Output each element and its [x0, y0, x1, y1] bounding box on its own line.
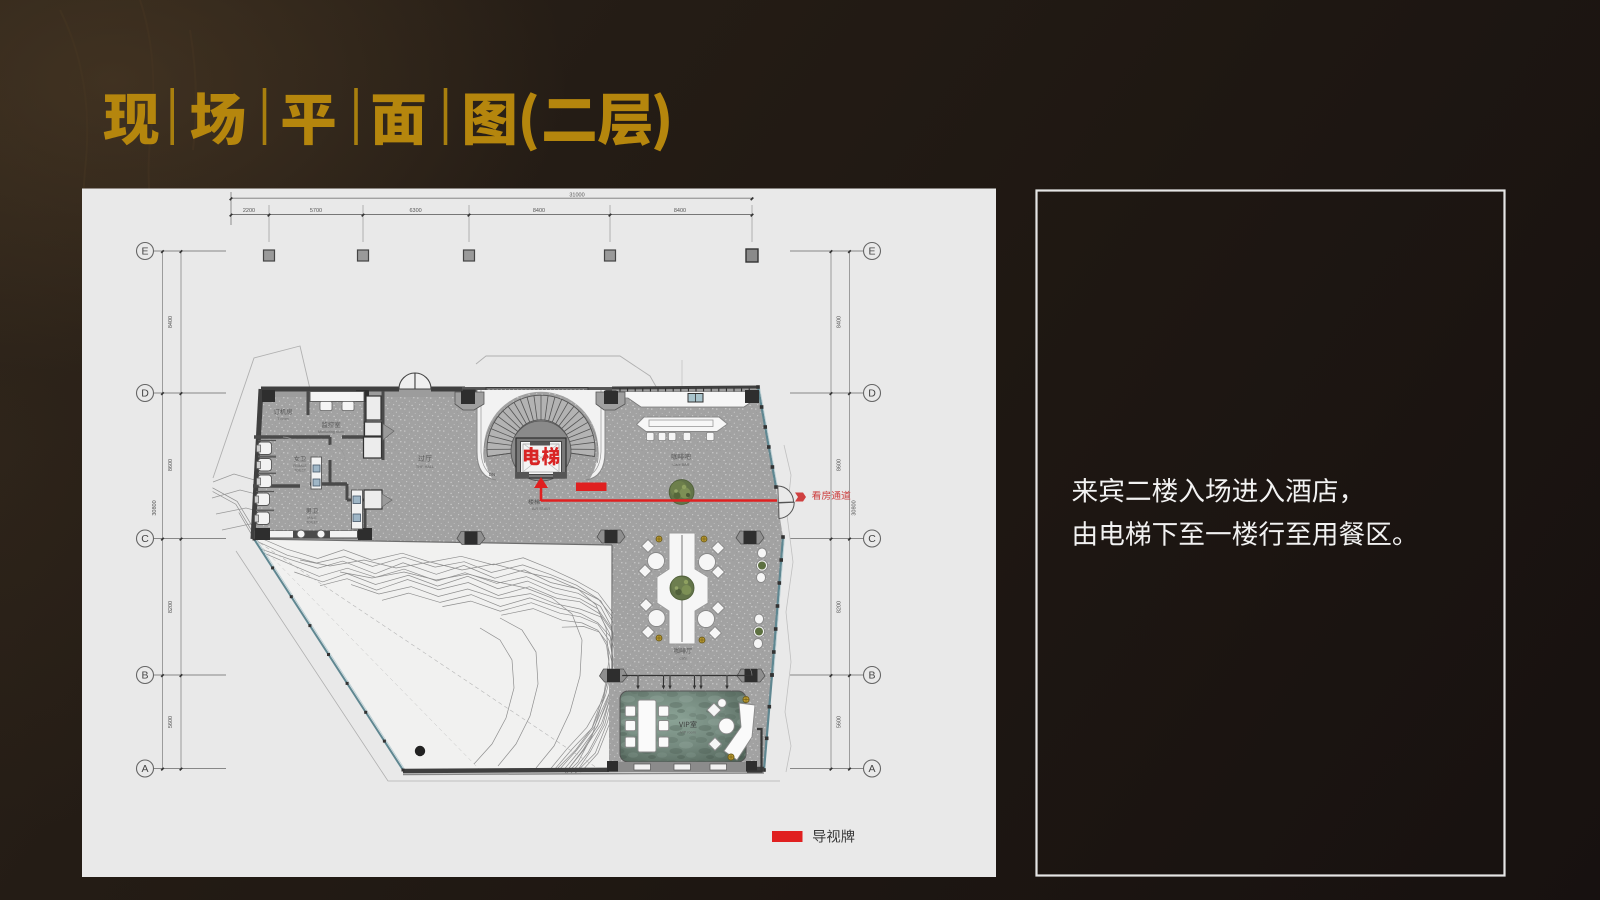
svg-text:2200: 2200 [243, 208, 255, 214]
svg-text:5600: 5600 [168, 716, 174, 728]
svg-text:30800: 30800 [852, 500, 858, 515]
svg-text:B: B [868, 670, 875, 682]
svg-text:8400: 8400 [837, 316, 843, 328]
svg-text:TOILET: TOILET [294, 469, 306, 473]
svg-text:D: D [141, 388, 149, 400]
svg-text:Cafe BAR: Cafe BAR [673, 463, 690, 467]
svg-text:D: D [868, 388, 876, 400]
svg-text:8200: 8200 [837, 601, 843, 613]
svg-text:A: A [141, 763, 148, 775]
svg-text:T room: T room [277, 417, 288, 421]
svg-text:E: E [868, 246, 875, 258]
svg-text:5600: 5600 [837, 716, 843, 728]
svg-text:31000: 31000 [569, 193, 584, 199]
svg-text:8400: 8400 [168, 316, 174, 328]
svg-text:6300: 6300 [409, 208, 421, 214]
svg-text:VIP room: VIP room [680, 731, 696, 735]
svg-text:8400: 8400 [533, 208, 545, 214]
svg-text:A: A [868, 763, 875, 775]
svg-text:C: C [141, 533, 149, 545]
svg-text:THE HALL: THE HALL [416, 465, 434, 469]
svg-text:C: C [868, 533, 876, 545]
svg-text:E: E [141, 246, 148, 258]
svg-text:Cafe: Cafe [679, 657, 687, 661]
svg-text:30800: 30800 [152, 500, 158, 515]
svg-text:8600: 8600 [837, 459, 843, 471]
svg-text:B: B [141, 670, 148, 682]
svg-text:FEMALE: FEMALE [293, 464, 307, 468]
svg-text:8400: 8400 [674, 208, 686, 214]
svg-text:AIR STAIR: AIR STAIR [532, 507, 551, 511]
svg-text:TOILET: TOILET [306, 521, 318, 525]
svg-text:8200: 8200 [168, 601, 174, 613]
svg-text:DN: DN [489, 472, 496, 477]
svg-text:8600: 8600 [168, 459, 174, 471]
svg-text:5700: 5700 [310, 208, 322, 214]
svg-text:MALE: MALE [307, 516, 317, 520]
svg-text:Monitoring room: Monitoring room [318, 430, 344, 434]
